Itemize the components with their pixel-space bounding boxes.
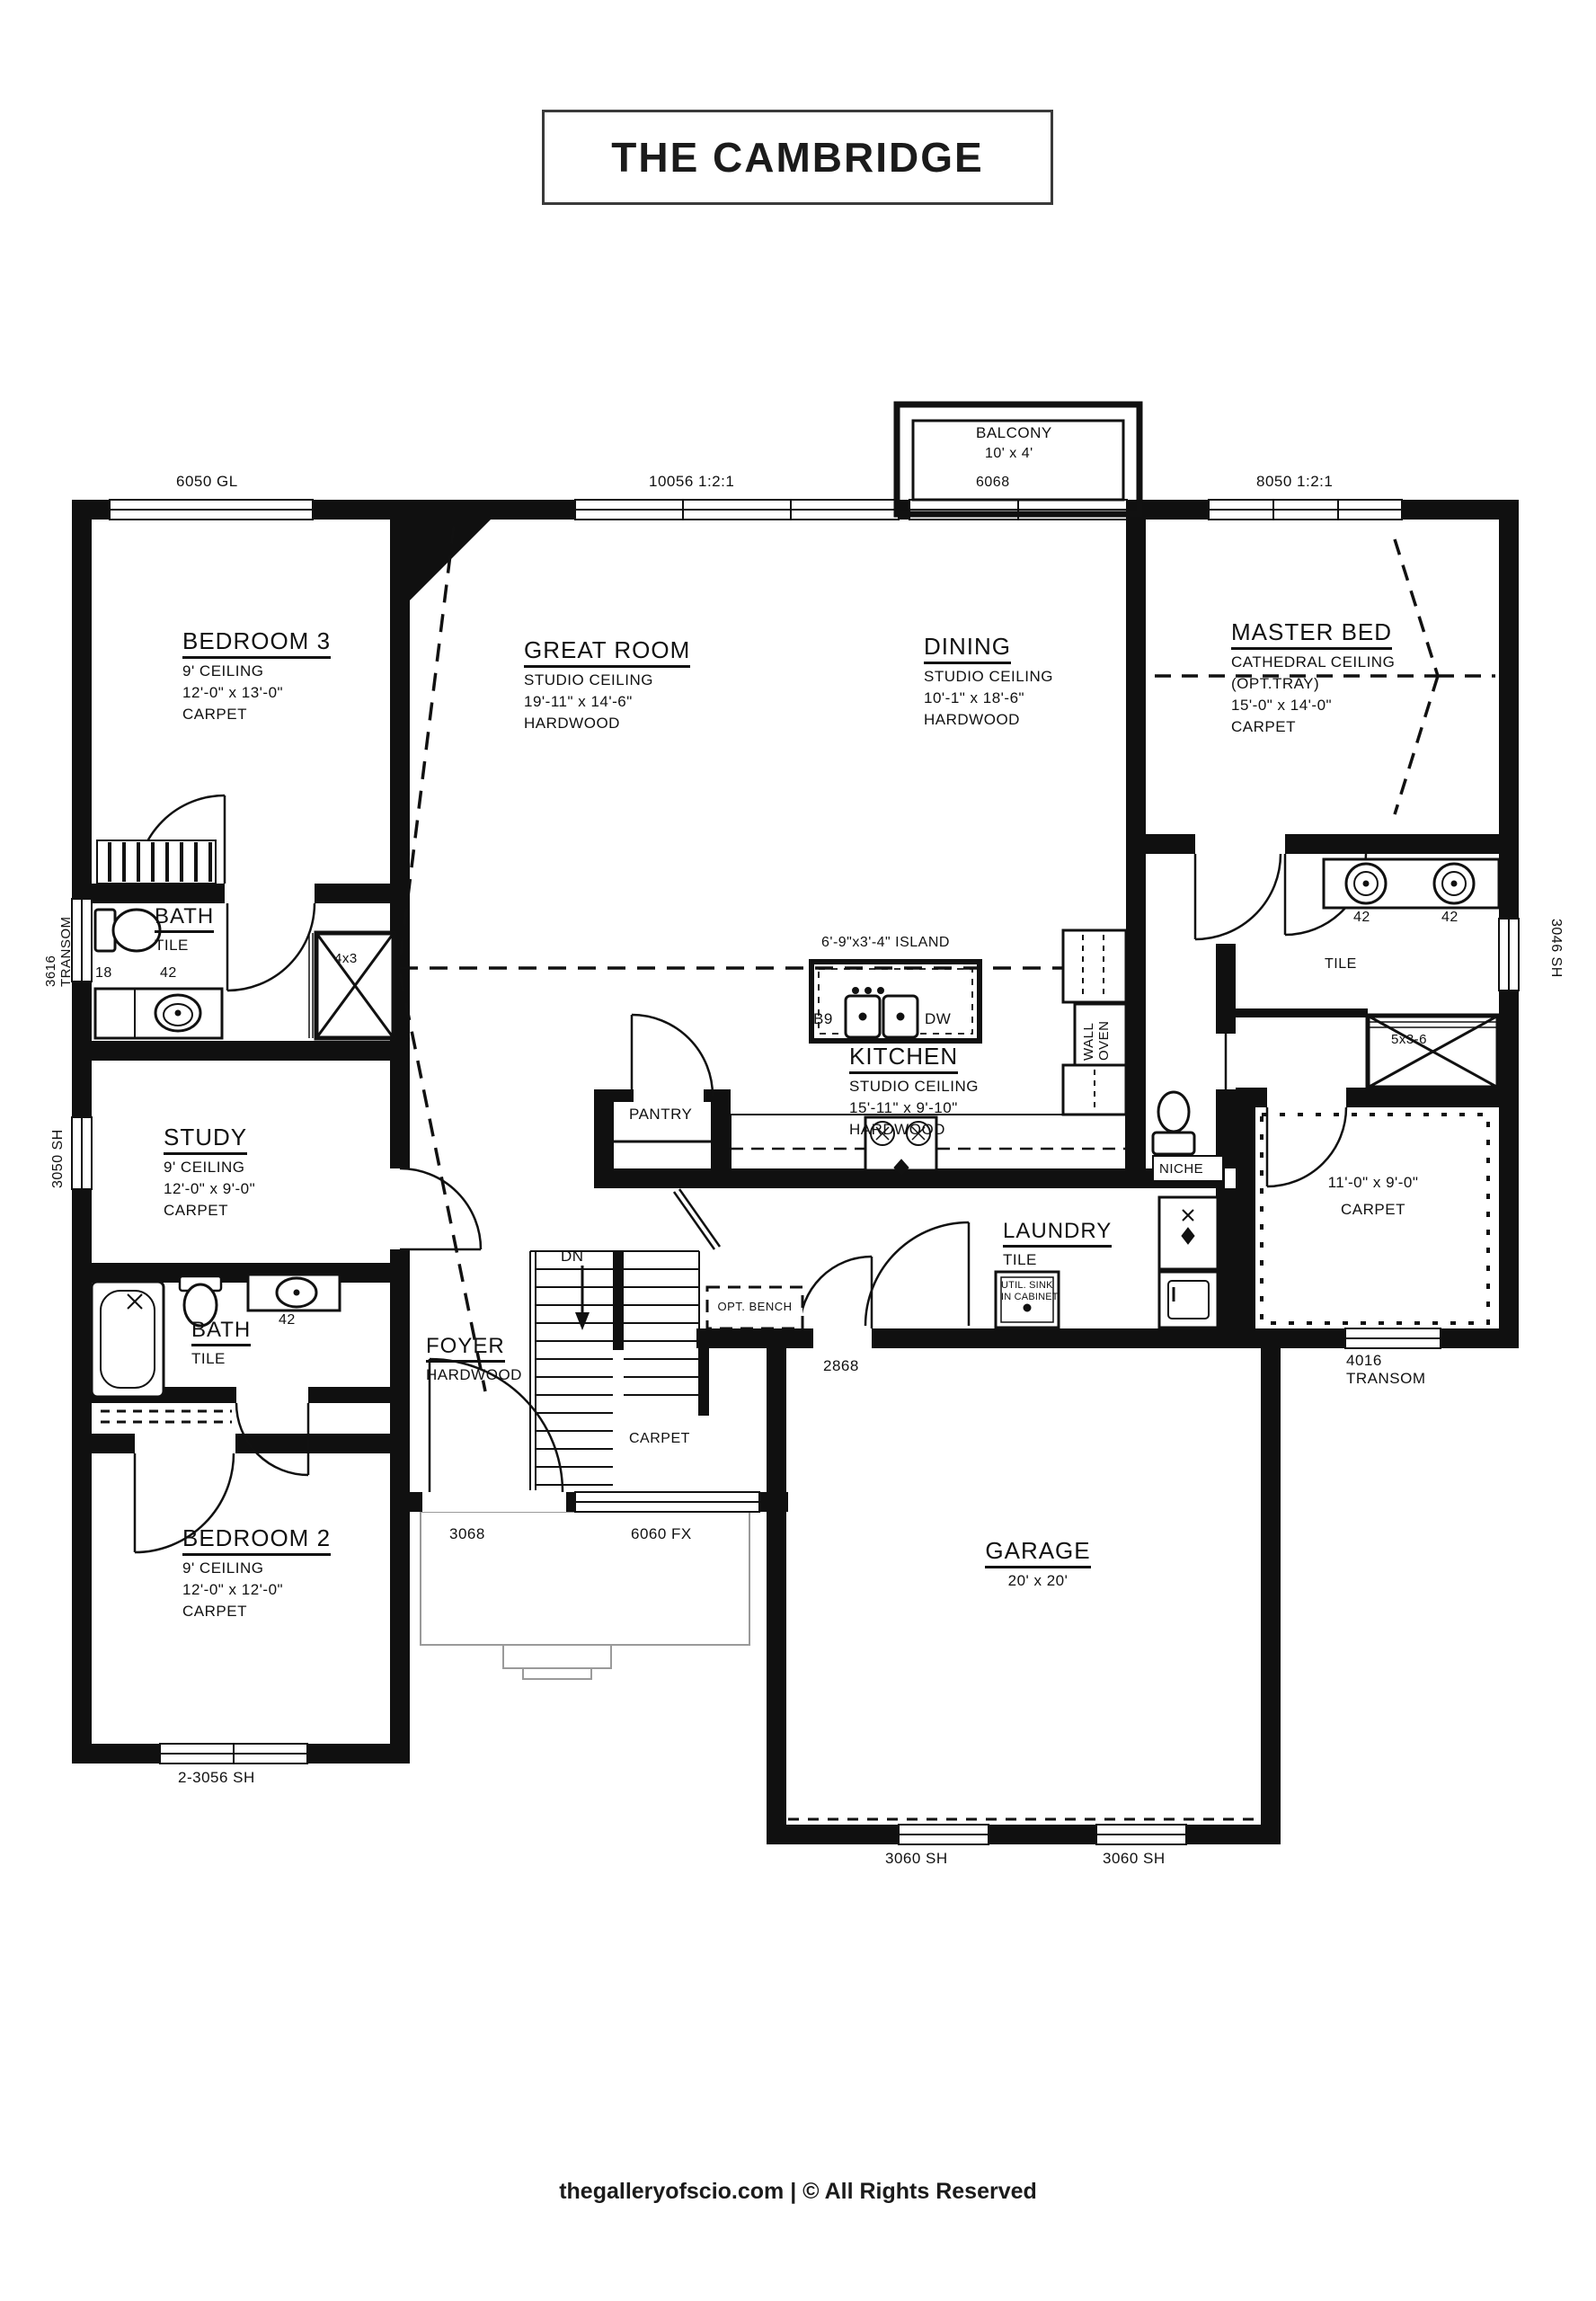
island-label: 6'-9"x3'-4" ISLAND <box>821 935 950 951</box>
balcony-label: BALCONY <box>976 424 1052 442</box>
room-bath2: BATH TILE <box>191 1318 251 1368</box>
great-room-ceiling: STUDIO CEILING <box>524 671 690 689</box>
window-label-10056: 10056 1:2:1 <box>649 473 734 491</box>
great-room-floor: HARDWOOD <box>524 715 690 733</box>
dining-size: 10'-1" x 18'-6" <box>924 689 1053 707</box>
master-bath-sink-a: 42 <box>1353 910 1370 926</box>
bath2-floor: TILE <box>191 1350 251 1368</box>
study-floor: CARPET <box>164 1202 255 1220</box>
room-bath1: BATH TILE <box>155 904 214 955</box>
wic-floor: CARPET <box>1283 1201 1463 1219</box>
window-label-6050gl: 6050 GL <box>176 473 238 491</box>
plan-title-box: THE CAMBRIDGE <box>542 110 1053 205</box>
closet-5x36-label: 5x3-6 <box>1391 1032 1427 1047</box>
study-size: 12'-0" x 9'-0" <box>164 1180 255 1198</box>
room-great-room: GREAT ROOM STUDIO CEILING 19'-11" x 14'-… <box>524 636 690 733</box>
room-wic: 11'-0" x 9'-0" CARPET <box>1283 1174 1463 1219</box>
kitchen-size: 15'-11" x 9'-10" <box>849 1099 979 1117</box>
dining-ceiling: STUDIO CEILING <box>924 668 1053 686</box>
footer-credit: thegalleryofscio.com | © All Rights Rese… <box>0 2179 1596 2205</box>
laundry-floor: TILE <box>1003 1251 1112 1269</box>
room-laundry: LAUNDRY TILE <box>1003 1219 1112 1269</box>
bedroom3-size: 12'-0" x 13'-0" <box>182 684 331 702</box>
room-dining: DINING STUDIO CEILING 10'-1" x 18'-6" HA… <box>924 633 1053 729</box>
room-bedroom2: BEDROOM 2 9' CEILING 12'-0" x 12'-0" CAR… <box>182 1524 331 1621</box>
window-label-3050sh: 3050 SH <box>50 1129 66 1188</box>
great-room-name: GREAT ROOM <box>524 636 690 668</box>
wic-size: 11'-0" x 9'-0" <box>1283 1174 1463 1192</box>
bedroom3-floor: CARPET <box>182 706 331 724</box>
bedroom2-floor: CARPET <box>182 1603 331 1621</box>
room-bedroom3: BEDROOM 3 9' CEILING 12'-0" x 13'-0" CAR… <box>182 627 331 724</box>
window-4016-num: 4016 <box>1346 1352 1426 1370</box>
master-name: MASTER BED <box>1231 618 1392 650</box>
kitchen-name: KITCHEN <box>849 1043 958 1074</box>
room-garage: GARAGE 20' x 20' <box>962 1537 1114 1590</box>
master-floor: CARPET <box>1231 718 1395 736</box>
util-sink-line1: UTIL. SINK <box>1001 1280 1059 1292</box>
room-master-bed: MASTER BED CATHEDRAL CEILING (OPT.TRAY) … <box>1231 618 1395 736</box>
wall-oven-label: WALL OVEN <box>1081 1020 1112 1061</box>
closet-4x3-label: 4x3 <box>334 951 358 966</box>
window-label-6060fx: 6060 FX <box>631 1525 692 1543</box>
window-label-3046sh: 3046 SH <box>1547 919 1564 978</box>
bedroom2-size: 12'-0" x 12'-0" <box>182 1581 331 1599</box>
stairs-carpet-label: CARPET <box>629 1431 690 1447</box>
balcony-size: 10' x 4' <box>985 446 1033 462</box>
window-label-3060sh-left: 3060 SH <box>885 1850 948 1868</box>
door-label-6068: 6068 <box>976 475 1010 491</box>
wall-oven-line1: WALL <box>1081 1020 1096 1061</box>
bath1-floor: TILE <box>155 937 214 955</box>
window-label-4016-transom: 4016 TRANSOM <box>1346 1352 1426 1388</box>
pantry-label: PANTRY <box>629 1106 692 1124</box>
bath2-name: BATH <box>191 1318 251 1346</box>
bedroom2-ceiling: 9' CEILING <box>182 1559 331 1577</box>
master-ceiling: CATHEDRAL CEILING <box>1231 653 1395 671</box>
window-label-8050: 8050 1:2:1 <box>1256 473 1333 491</box>
wall-oven-line2: OVEN <box>1096 1020 1112 1061</box>
dining-name: DINING <box>924 633 1011 664</box>
plan-title: THE CAMBRIDGE <box>611 133 983 182</box>
window-label-3616-transom: 3616 TRANSOM <box>43 917 74 988</box>
foyer-floor: HARDWOOD <box>426 1366 522 1384</box>
dn-arrow <box>575 1266 590 1330</box>
window-label-3060sh-right: 3060 SH <box>1103 1850 1166 1868</box>
window-label-3056sh: 2-3056 SH <box>178 1769 255 1787</box>
room-study: STUDY 9' CEILING 12'-0" x 9'-0" CARPET <box>164 1124 255 1220</box>
study-name: STUDY <box>164 1124 247 1155</box>
garage-name: GARAGE <box>985 1537 1090 1568</box>
bedroom2-name: BEDROOM 2 <box>182 1524 331 1556</box>
bath2-dim-42: 42 <box>279 1312 296 1328</box>
kitchen-floor: HARDWOOD <box>849 1121 979 1139</box>
window-3616-num: 3616 <box>43 917 58 988</box>
floor-plan-page: THE CAMBRIDGE thegalleryofscio.com | © A… <box>0 0 1596 2301</box>
room-foyer: FOYER HARDWOOD <box>426 1334 522 1384</box>
dishwasher-label: DW <box>925 1010 951 1028</box>
master-size: 15'-0" x 14'-0" <box>1231 697 1395 715</box>
dining-floor: HARDWOOD <box>924 711 1053 729</box>
kitchen-ceiling: STUDIO CEILING <box>849 1078 979 1096</box>
door-label-2868: 2868 <box>823 1357 859 1375</box>
room-kitchen: KITCHEN STUDIO CEILING 15'-11" x 9'-10" … <box>849 1043 979 1139</box>
niche-label: NICHE <box>1159 1161 1203 1177</box>
study-ceiling: 9' CEILING <box>164 1159 255 1177</box>
util-sink-label: UTIL. SINK IN CABINET <box>1001 1280 1059 1303</box>
great-room-size: 19'-11" x 14'-6" <box>524 693 690 711</box>
foyer-name: FOYER <box>426 1334 505 1363</box>
bath1-dim-18: 18 <box>95 965 112 982</box>
opt-bench-label: OPT. BENCH <box>709 1300 801 1313</box>
window-4016-word: TRANSOM <box>1346 1370 1426 1388</box>
window-3616-word: TRANSOM <box>58 917 74 988</box>
bedroom3-ceiling: 9' CEILING <box>182 662 331 680</box>
master-bath-floor: TILE <box>1325 956 1357 973</box>
bath1-name: BATH <box>155 904 214 933</box>
door-label-3068: 3068 <box>449 1525 485 1543</box>
master-bath-sink-b: 42 <box>1441 910 1459 926</box>
master-ceiling-opt: (OPT.TRAY) <box>1231 675 1395 693</box>
island-b9-label: B9 <box>813 1010 833 1028</box>
stairs-dn-label: DN <box>561 1248 584 1266</box>
laundry-name: LAUNDRY <box>1003 1219 1112 1248</box>
bath1-dim-42: 42 <box>160 965 177 982</box>
bedroom3-name: BEDROOM 3 <box>182 627 331 659</box>
garage-size: 20' x 20' <box>962 1572 1114 1590</box>
util-sink-line2: IN CABINET <box>1001 1292 1059 1303</box>
